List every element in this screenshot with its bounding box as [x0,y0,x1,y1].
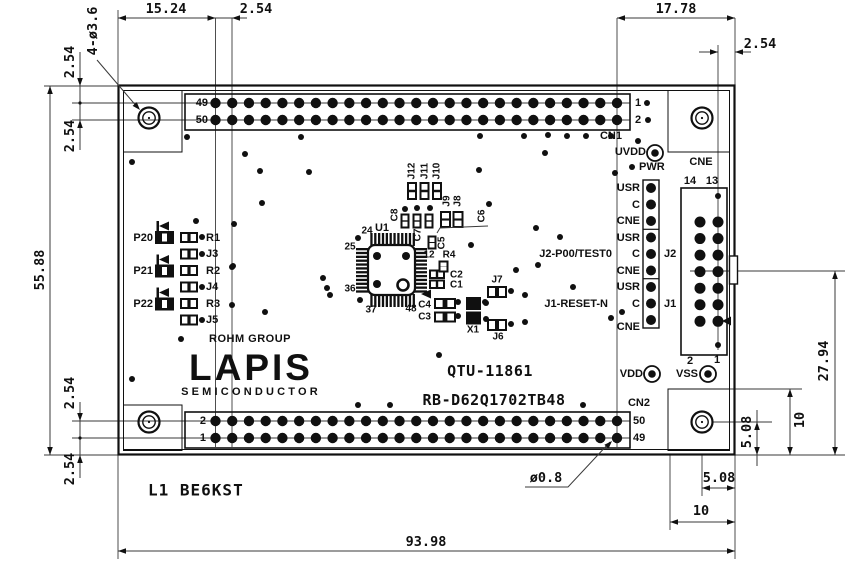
mounting-hole-bottom-left [139,412,160,433]
u1-pin37: 37 [365,305,376,316]
dim-corner-box-width: 10 [693,503,709,519]
cn1-pin49-label: 49 [196,97,208,109]
drawing-note-text: L1 BE6KST [148,481,244,500]
c7-refdes: C7 [412,229,423,242]
mounting-hole-bottom-right [692,412,713,433]
u1-pin12: 12 [423,250,434,261]
board-name-text: QTU-11861 [447,362,533,380]
cne-pin1-label: 1 [714,354,720,366]
j8-refdes: J8 [453,195,464,206]
dim-hole-to-edge: 5.08 [703,470,736,486]
vss-test-point [700,366,716,382]
header-pin-label-usr-1: USR [617,182,640,194]
j12-refdes: J12 [407,163,418,180]
dim-mount-hole-note: 4-ø3.6 [85,7,101,56]
j6-refdes: J6 [492,332,503,343]
header-pin-label-c-2: C [632,248,640,260]
uvdd-test-point [647,145,663,161]
j11-refdes: J11 [419,163,430,179]
u1-refdes: U1 [375,222,389,234]
cn1-pin50-label: 50 [196,114,208,126]
vss-label: VSS [676,368,698,380]
rohm-group-logo-text: ROHM GROUP [209,333,291,345]
cn2-pin2-label: 2 [200,415,206,427]
dim-left-top-offset: 2.54 [62,46,78,79]
pwr-label: PWR [639,161,665,173]
c3-refdes: C3 [418,311,431,322]
dim-top-right-width: 17.78 [656,1,697,17]
c8-refdes: C8 [390,209,401,222]
cn1-pin1-label: 1 [635,97,641,109]
header-pin-label-usr-3: USR [617,281,640,293]
lapis-logo-text: LAPIS [189,347,313,389]
pcb-dimension-drawing: 15.24 2.54 17.78 2.54 2.54 4-ø3.6 2.54 5… [0,0,850,571]
header-pin-label-cne-3: CNE [617,321,640,333]
mounting-hole-top-left [139,108,160,129]
j3-refdes: J3 [206,248,218,260]
r2-refdes: R2 [206,265,220,277]
dim-top-left-width: 15.24 [146,1,187,17]
vdd-label: VDD [620,368,643,380]
cn1-pin2-label: 2 [635,114,641,126]
j7-refdes: J7 [491,275,502,286]
dim-board-height: 55.88 [32,250,48,291]
dim-top-pin-pitch: 2.54 [240,1,273,17]
dim-board-width: 93.98 [406,534,447,550]
dim-bottom-row-pitch: 2.54 [62,377,78,410]
cn2-pin49-label: 49 [633,432,645,444]
header-pin-label-c-3: C [632,298,640,310]
uvdd-label: UVDD [615,146,646,158]
j9-refdes: J9 [442,195,453,206]
cne-pin13-label: 13 [706,175,718,187]
c4-refdes: C4 [418,300,431,311]
x1-refdes: X1 [467,325,479,336]
header-pin-label-c-1: C [632,199,640,211]
header-pin-label-cne-2: CNE [617,265,640,277]
cn2-pin50-label: 50 [633,415,645,427]
cn1-refdes: CN1 [600,130,622,142]
board-edge-notch [730,256,738,284]
u1-pin48: 48 [405,304,416,315]
dim-hole-to-bottom: 5.08 [739,416,755,449]
cn2-pin1-label: 1 [200,432,206,444]
p20-refdes: P20 [133,232,153,244]
board-code-text: RB-D62Q1702TB48 [423,391,566,409]
cne-label: CNE [689,156,712,168]
j5-refdes: J5 [206,314,218,326]
r4-refdes: R4 [443,250,456,261]
header-pin-label-usr-2: USR [617,232,640,244]
mounting-hole-top-right [692,108,713,129]
u1-pin36: 36 [344,284,355,295]
cn2-refdes: CN2 [628,397,650,409]
j2-p00-signal-label: J2-P00/TEST0 [539,248,612,260]
cne-pin2-label: 2 [687,355,693,367]
vdd-test-point [644,366,660,382]
cne-pin14-label: 14 [684,175,696,187]
c6-refdes: C6 [477,210,488,223]
u1-pin24: 24 [361,226,372,237]
c1-refdes: C1 [450,279,463,290]
r1-refdes: R1 [206,232,220,244]
semiconductor-logo-text: SEMICONDUCTOR [181,386,321,398]
u1-pin25: 25 [344,242,355,253]
dim-corner-box-height: 10 [792,412,808,428]
j1-refdes: J1 [664,298,676,310]
p22-refdes: P22 [133,298,153,310]
j4-refdes: J4 [206,281,218,293]
dim-right-edge-pitch: 2.54 [744,36,777,52]
dim-cne-to-bottom: 27.94 [816,341,832,382]
dim-bottom-edge-offset: 2.54 [62,453,78,486]
j10-refdes: J10 [432,163,443,180]
ic-pin1-marker [398,280,409,291]
c5-refdes: C5 [437,237,448,250]
r3-refdes: R3 [206,298,220,310]
dim-left-row-pitch: 2.54 [62,120,78,153]
header-pin-label-cne-1: CNE [617,215,640,227]
dim-pin-hole-dia: ø0.8 [530,470,563,486]
p21-refdes: P21 [133,265,153,277]
j2-refdes: J2 [664,248,676,260]
j1-reset-signal-label: J1-RESET-N [544,298,608,310]
